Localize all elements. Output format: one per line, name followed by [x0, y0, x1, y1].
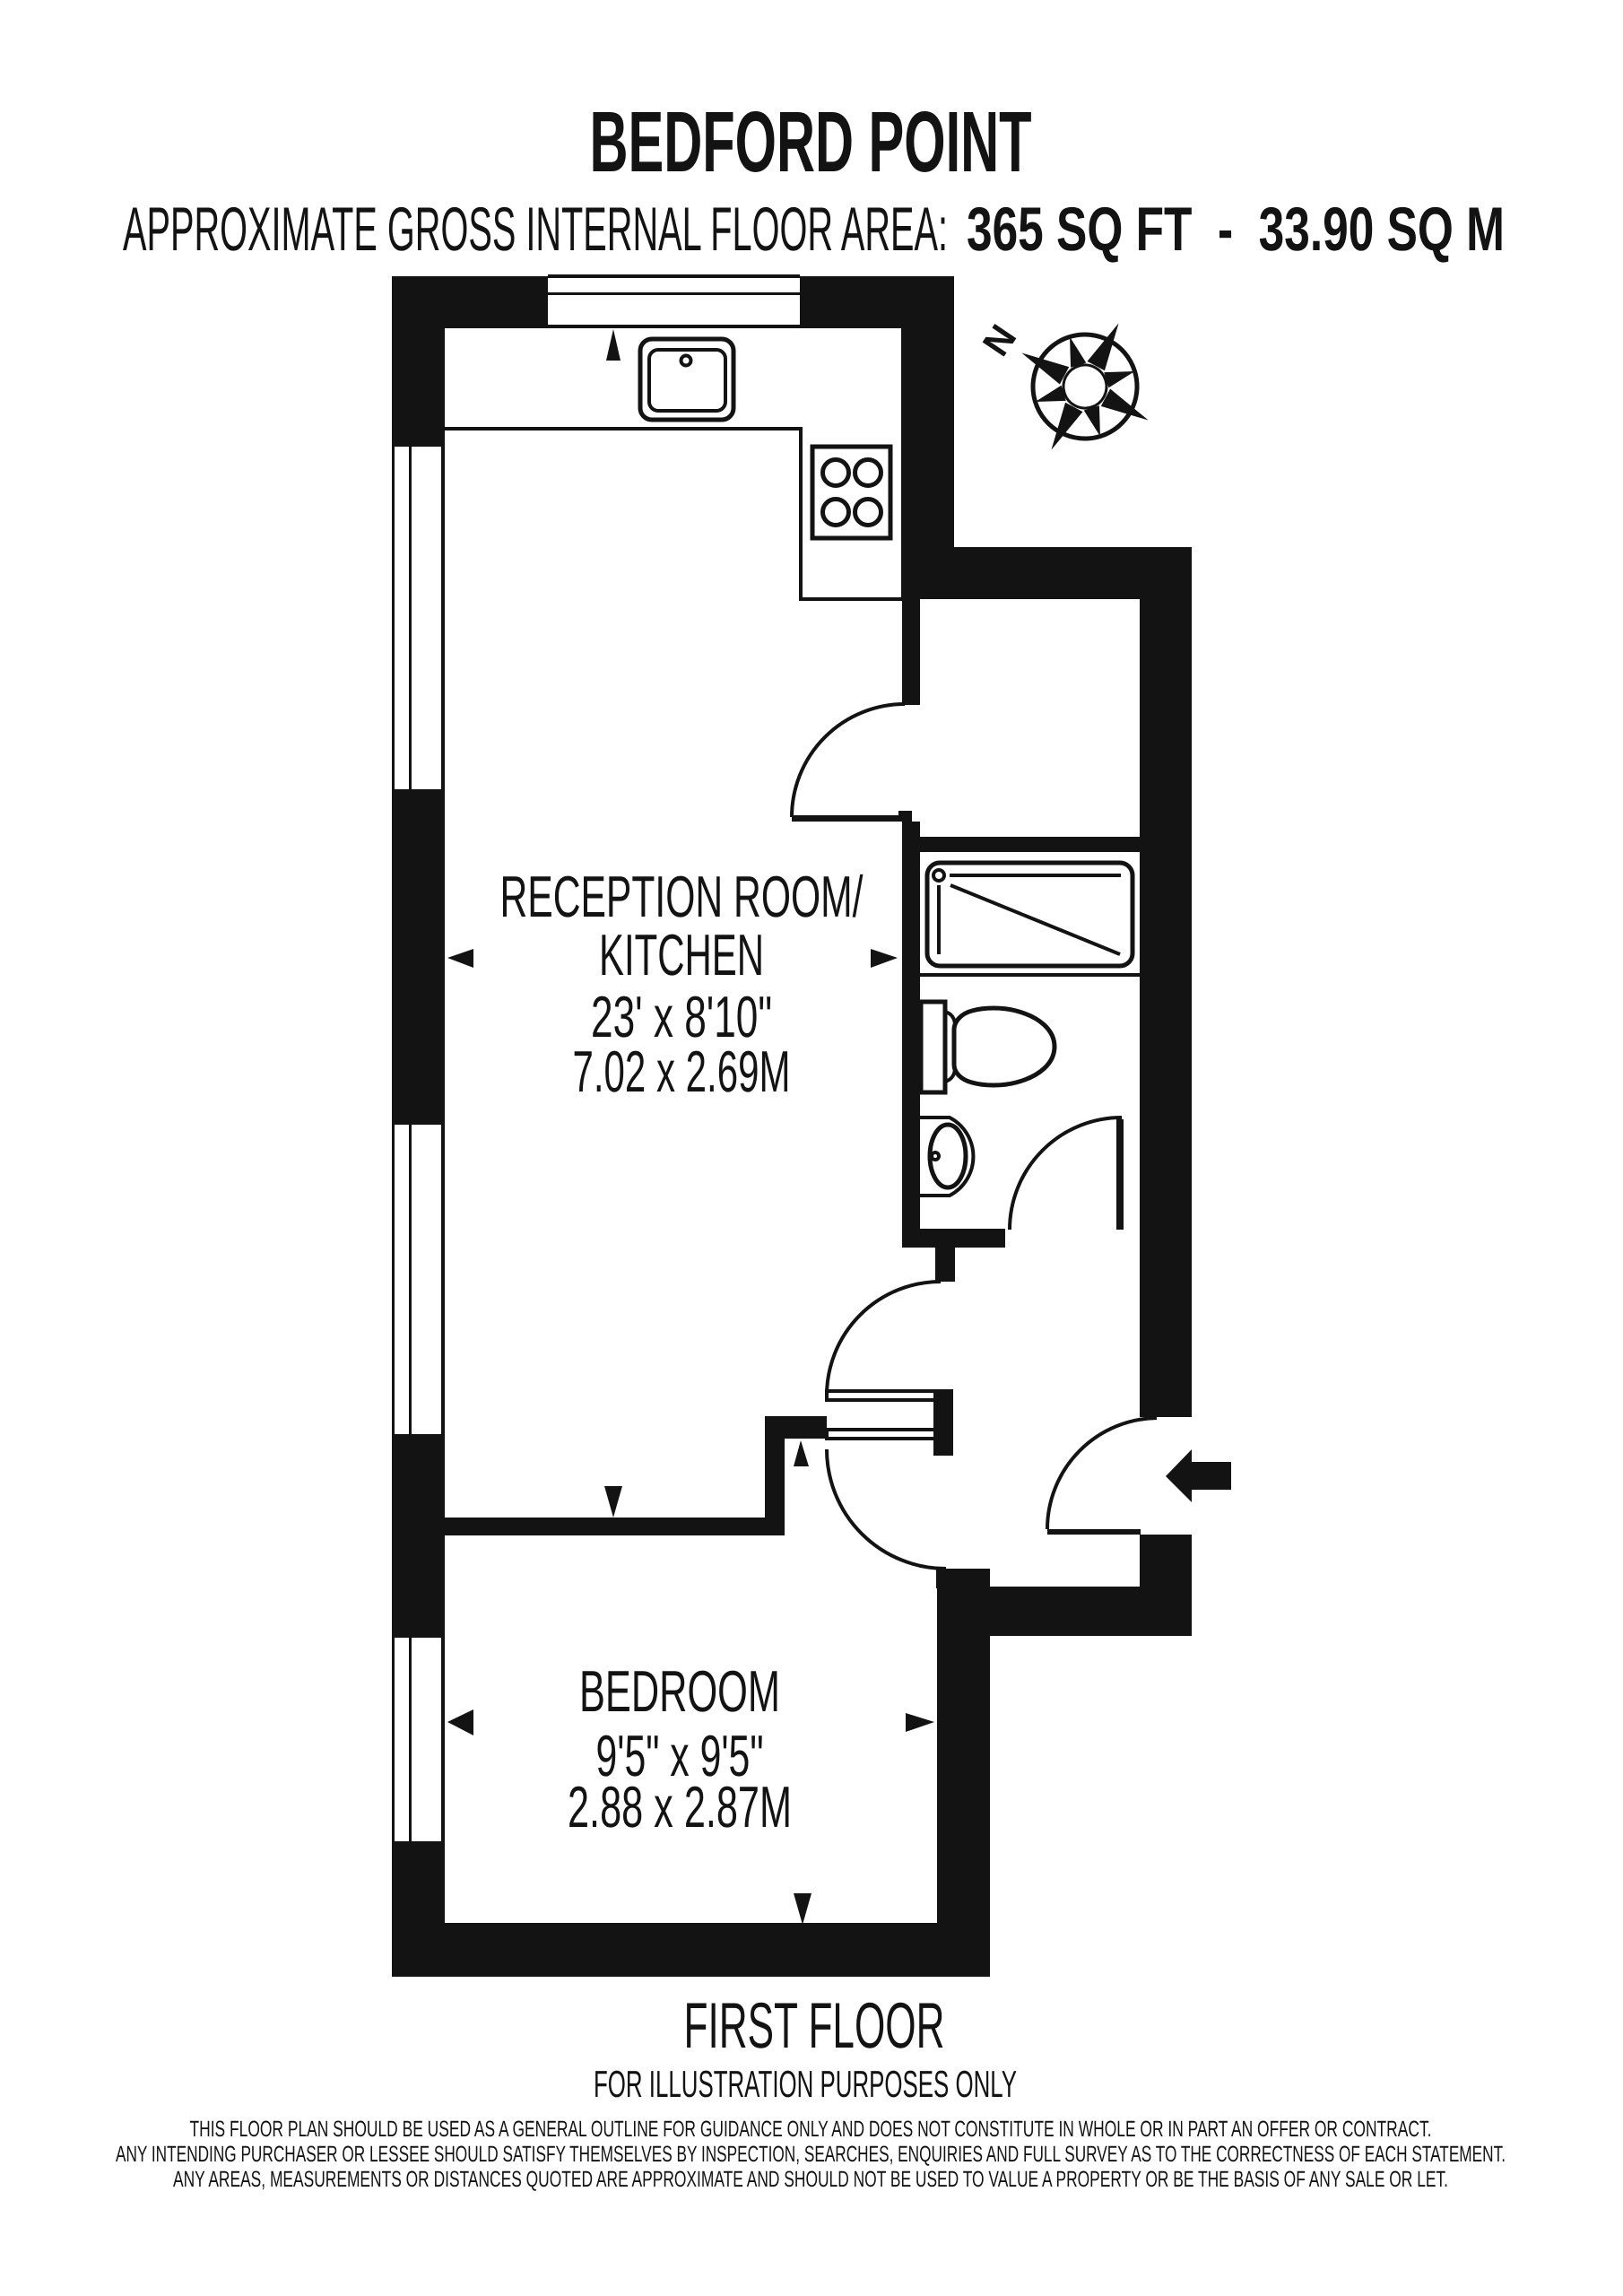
svg-text:7.02 x 2.69M: 7.02 x 2.69M [573, 1039, 791, 1104]
svg-text:BEDFORD POINT: BEDFORD POINT [590, 94, 1032, 190]
svg-text:365 SQ FT - 33.90 SQ M: 365 SQ FT - 33.90 SQ M [967, 195, 1505, 264]
svg-text:FOR ILLUSTRATION PURPOSES ONLY: FOR ILLUSTRATION PURPOSES ONLY [594, 2063, 1017, 2105]
svg-text:FIRST FLOOR: FIRST FLOOR [684, 1990, 945, 2062]
svg-text:ANY INTENDING PURCHASER OR LES: ANY INTENDING PURCHASER OR LESSEE SHOULD… [116, 2142, 1506, 2167]
svg-text:KITCHEN: KITCHEN [599, 922, 764, 987]
svg-text:RECEPTION ROOM/: RECEPTION ROOM/ [500, 864, 864, 929]
svg-text:2.88 x 2.87M: 2.88 x 2.87M [568, 1774, 792, 1839]
svg-text:APPROXIMATE GROSS INTERNAL FLO: APPROXIMATE GROSS INTERNAL FLOOR AREA: [123, 195, 948, 264]
svg-text:THIS FLOOR PLAN SHOULD BE USED: THIS FLOOR PLAN SHOULD BE USED AS A GENE… [190, 2117, 1432, 2142]
svg-text:BEDROOM: BEDROOM [579, 1658, 780, 1724]
svg-text:ANY AREAS, MEASUREMENTS OR DIS: ANY AREAS, MEASUREMENTS OR DISTANCES QUO… [173, 2167, 1448, 2192]
